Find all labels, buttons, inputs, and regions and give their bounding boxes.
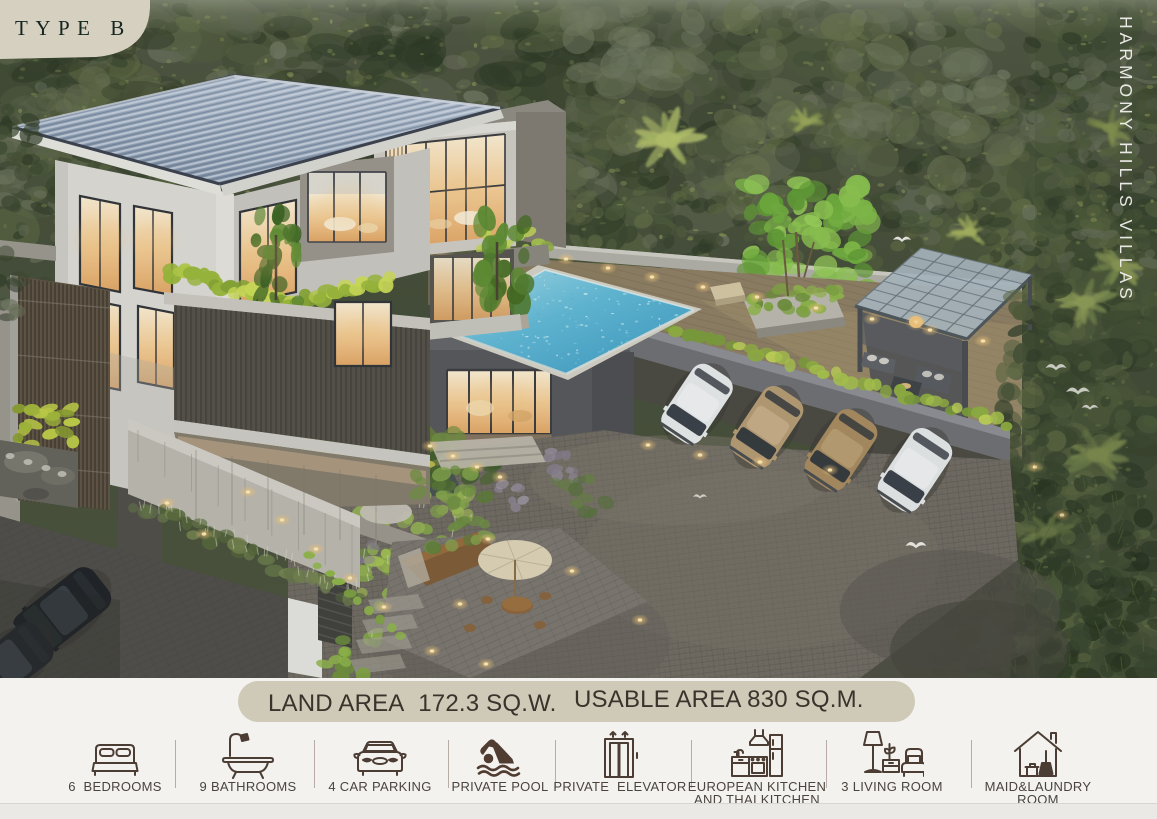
svg-text:HARMONY HILLS VILLAS: HARMONY HILLS VILLAS: [1116, 16, 1136, 303]
svg-text:TYPE B: TYPE B: [15, 16, 132, 40]
